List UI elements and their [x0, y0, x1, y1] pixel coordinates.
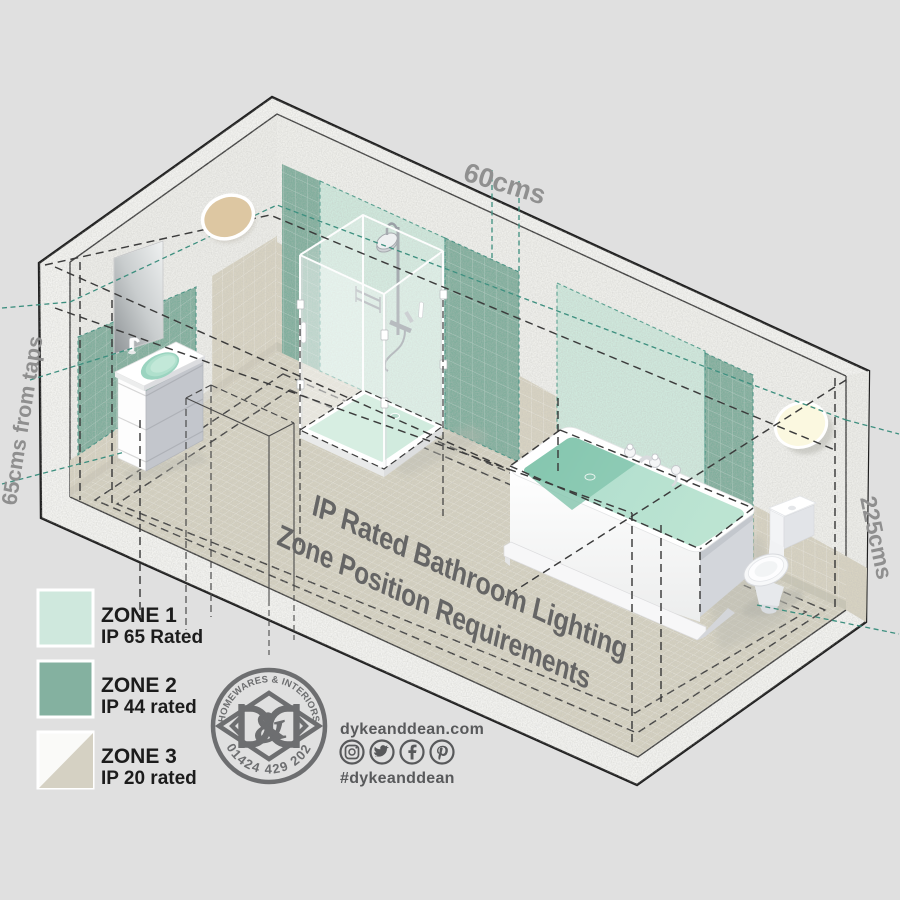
svg-text:dykeanddean.com: dykeanddean.com [340, 721, 484, 738]
svg-text:ZONE 3: ZONE 3 [101, 745, 177, 768]
svg-text:IP 44 rated: IP 44 rated [101, 697, 197, 718]
svg-text:ZONE 2: ZONE 2 [101, 674, 177, 697]
svg-text:#dykeanddean: #dykeanddean [340, 770, 455, 787]
svg-text:IP 65 Rated: IP 65 Rated [101, 627, 203, 648]
svg-text:ZONE 1: ZONE 1 [101, 604, 177, 627]
svg-text:IP 20 rated: IP 20 rated [101, 768, 197, 789]
